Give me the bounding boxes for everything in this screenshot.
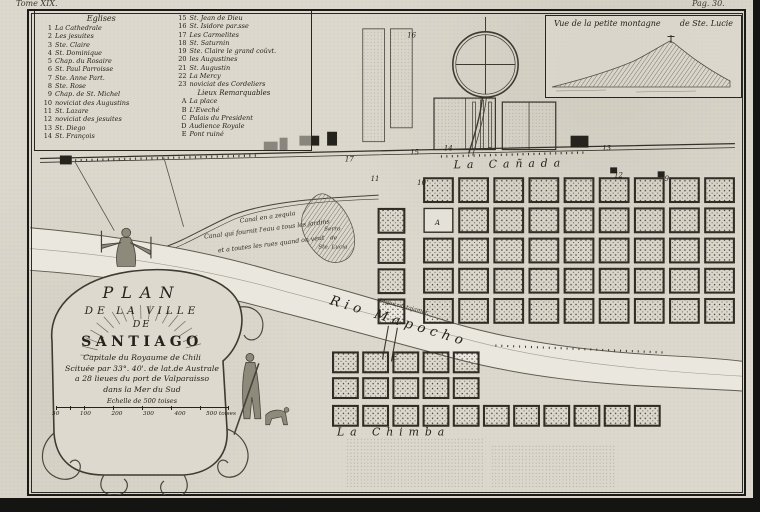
label-la-canada: La Cañada <box>453 156 567 171</box>
legend-item: 18St. Saturnin <box>176 39 307 47</box>
cartouche-subtitle-4: dans la Mer du Sud <box>52 385 232 396</box>
legend-item: 14St. François <box>41 132 172 140</box>
legend-item: DAudience Royale <box>176 122 307 130</box>
legend-item: 21St. Augustin <box>176 64 307 72</box>
city-block <box>333 406 358 426</box>
city-block <box>494 239 523 263</box>
city-block <box>424 299 453 323</box>
city-block <box>494 299 523 323</box>
cartouche-de-la-ville: DE LA VILLE <box>52 305 232 317</box>
legend-item: 3Ste. Claire <box>41 41 172 49</box>
city-block <box>565 299 594 323</box>
city-block <box>424 269 453 293</box>
city-block <box>635 208 664 232</box>
cartouche-santiago: SANTIAGO <box>52 334 232 350</box>
city-block <box>424 378 449 398</box>
city-block <box>600 208 629 232</box>
legend-item: 22La Mercy <box>176 72 307 80</box>
city-block <box>670 239 699 263</box>
city-block <box>565 239 594 263</box>
inset-mountain-drawing <box>546 35 741 97</box>
legend-item: 9Chap. de St. Michel <box>41 90 172 98</box>
city-block <box>484 406 509 426</box>
city-block <box>393 406 418 426</box>
legend-item: 13St. Diego <box>41 124 172 132</box>
legend-item: 10noviciat des Augustins <box>41 99 172 107</box>
city-block <box>459 239 488 263</box>
cartouche-subtitle-2: Scituée par 33°. 40'. de lat.de Australe <box>52 364 232 375</box>
city-block <box>530 208 559 232</box>
map-marker-A: A <box>434 219 440 227</box>
map-paper: Tome XIX. Pag. 30. <box>0 0 753 498</box>
city-block <box>459 299 488 323</box>
inset-view-box: Vue de la petite montagne de Ste. Lucie <box>545 15 742 98</box>
cartouche-subtitle-1: Capitale du Royaume de Chili <box>52 353 232 364</box>
city-block <box>605 406 630 426</box>
legend-item: 19Ste. Claire le grand coûvt. <box>176 47 307 55</box>
city-block <box>670 269 699 293</box>
scale-tick: 200 <box>111 411 122 417</box>
city-block <box>635 299 664 323</box>
mountain-silhouette <box>552 41 730 87</box>
scale-title: Echelle de 500 toises <box>52 397 232 405</box>
legend-item: 8Ste. Rose <box>41 82 172 90</box>
legend-subtitle: Lieux Remarquables <box>176 89 307 98</box>
tome-label: Tome XIX. <box>16 0 58 8</box>
scale-bar <box>56 407 228 411</box>
label-serro-3: Ste. Lucia <box>318 245 348 251</box>
city-block <box>459 178 488 202</box>
city-block <box>424 239 453 263</box>
city-block <box>705 299 734 323</box>
legend-item: ALa place <box>176 97 307 105</box>
scale-tick: 400 <box>174 411 185 417</box>
city-block <box>363 352 388 372</box>
map-marker-17: 17 <box>345 155 354 163</box>
city-block <box>393 378 418 398</box>
legend-item: 15St. Jean de Dieu <box>176 14 307 22</box>
page-ref-label: Pag. 30. <box>692 0 725 8</box>
city-block <box>514 406 539 426</box>
legend-item: 4St. Dominique <box>41 49 172 57</box>
city-block <box>705 178 734 202</box>
city-block <box>565 269 594 293</box>
label-la-chimba: La Chimba <box>336 426 450 439</box>
label-serro-2: de <box>330 236 338 242</box>
map-marker-11: 11 <box>371 175 380 183</box>
legend-item: 20les Augustines <box>176 55 307 63</box>
legend-item: 16St. Isidore par.sse <box>176 22 307 30</box>
city-block <box>705 269 734 293</box>
scale-tick-labels: 50100200300400500 toises <box>52 411 236 417</box>
city-block <box>600 239 629 263</box>
scale-tick: 50 <box>52 411 59 417</box>
legend-item: 5Chap. du Rosaire <box>41 57 172 65</box>
legend-box: Eglises 1La Cathedrale2Les jesuites3Ste.… <box>34 11 312 151</box>
photo-background: Tome XIX. Pag. 30. <box>0 0 760 512</box>
map-marker-14: 14 <box>444 145 453 153</box>
city-block <box>424 352 449 372</box>
city-block <box>494 269 523 293</box>
city-block <box>530 239 559 263</box>
city-block <box>600 269 629 293</box>
map-frame: La Cañada Rio Mapocho La Chimba Serro de… <box>27 9 746 496</box>
city-block <box>454 378 479 398</box>
city-block <box>635 269 664 293</box>
legend-item: 6St. Paul Parroisse <box>41 65 172 73</box>
cartouche-text: PLAN DE LA VILLE DE SANTIAGO Capitale du… <box>52 283 232 417</box>
legend-title: Eglises <box>71 14 132 23</box>
city-block <box>575 406 600 426</box>
cartouche-de: DE <box>52 319 232 330</box>
map-marker-12: 12 <box>614 171 623 179</box>
title-cartouche: PLAN DE LA VILLE DE SANTIAGO Capitale du… <box>34 221 300 495</box>
legend-column-1: Eglises 1La Cathedrale2Les jesuites3Ste.… <box>41 14 172 148</box>
city-block <box>565 178 594 202</box>
city-block <box>494 208 523 232</box>
city-block <box>705 239 734 263</box>
map-marker-E: E <box>391 353 397 361</box>
city-block <box>530 269 559 293</box>
scale-tick: 500 toises <box>206 411 236 417</box>
city-block <box>670 208 699 232</box>
inset-title-left: Vue de la petite montagne <box>554 19 661 28</box>
city-block <box>459 208 488 232</box>
dotted-fields <box>345 438 615 488</box>
city-block <box>333 352 358 372</box>
city-block <box>530 178 559 202</box>
city-block <box>424 178 453 202</box>
city-block <box>454 352 479 372</box>
city-block <box>600 299 629 323</box>
legend-item: 7Ste. Anne Part. <box>41 74 172 82</box>
map-marker-16: 16 <box>407 32 416 40</box>
legend-item: 23noviciat des Cordeliers <box>176 80 307 88</box>
label-serro-1: Serro <box>324 227 341 233</box>
legend-item: 17Les Carmelites <box>176 31 307 39</box>
cartouche-subtitle-3: a 28 lieues du port de Valparaisso <box>52 374 232 385</box>
city-block <box>494 178 523 202</box>
cartouche-plan: PLAN <box>52 283 232 302</box>
city-block <box>705 208 734 232</box>
map-marker-9: 9 <box>665 175 670 183</box>
legend-column-2: 15St. Jean de Dieu16St. Isidore par.sse1… <box>176 14 307 148</box>
city-block <box>363 378 388 398</box>
legend-item: 11St. Lazare <box>41 107 172 115</box>
map-marker-15: 15 <box>410 149 419 157</box>
city-block <box>565 208 594 232</box>
city-block <box>635 178 664 202</box>
city-block <box>333 378 358 398</box>
legend-item: EPont ruiné <box>176 130 307 138</box>
map-marker-10: 10 <box>417 179 426 187</box>
city-block <box>379 239 405 263</box>
scale-tick: 100 <box>80 411 91 417</box>
city-block <box>454 406 479 426</box>
city-block <box>670 299 699 323</box>
legend-item: 12noviciat des jesuites <box>41 115 172 123</box>
city-block <box>379 209 405 233</box>
city-block <box>600 178 629 202</box>
city-block <box>544 406 569 426</box>
city-block <box>635 406 660 426</box>
city-block <box>379 269 405 293</box>
inset-title: Vue de la petite montagne de Ste. Lucie <box>546 16 741 28</box>
map-marker-13: 13 <box>602 145 611 153</box>
legend-item: 2Les jesuites <box>41 32 172 40</box>
inset-title-right: de Ste. Lucie <box>680 19 733 28</box>
city-block <box>424 406 449 426</box>
legend-item: CPalais du President <box>176 114 307 122</box>
city-block <box>635 239 664 263</box>
scale-tick: 300 <box>143 411 154 417</box>
city-block <box>670 178 699 202</box>
legend-item: BL'Eveché <box>176 106 307 114</box>
city-block <box>459 269 488 293</box>
legend-item: 1La Cathedrale <box>41 24 172 32</box>
city-block <box>530 299 559 323</box>
city-block <box>363 406 388 426</box>
